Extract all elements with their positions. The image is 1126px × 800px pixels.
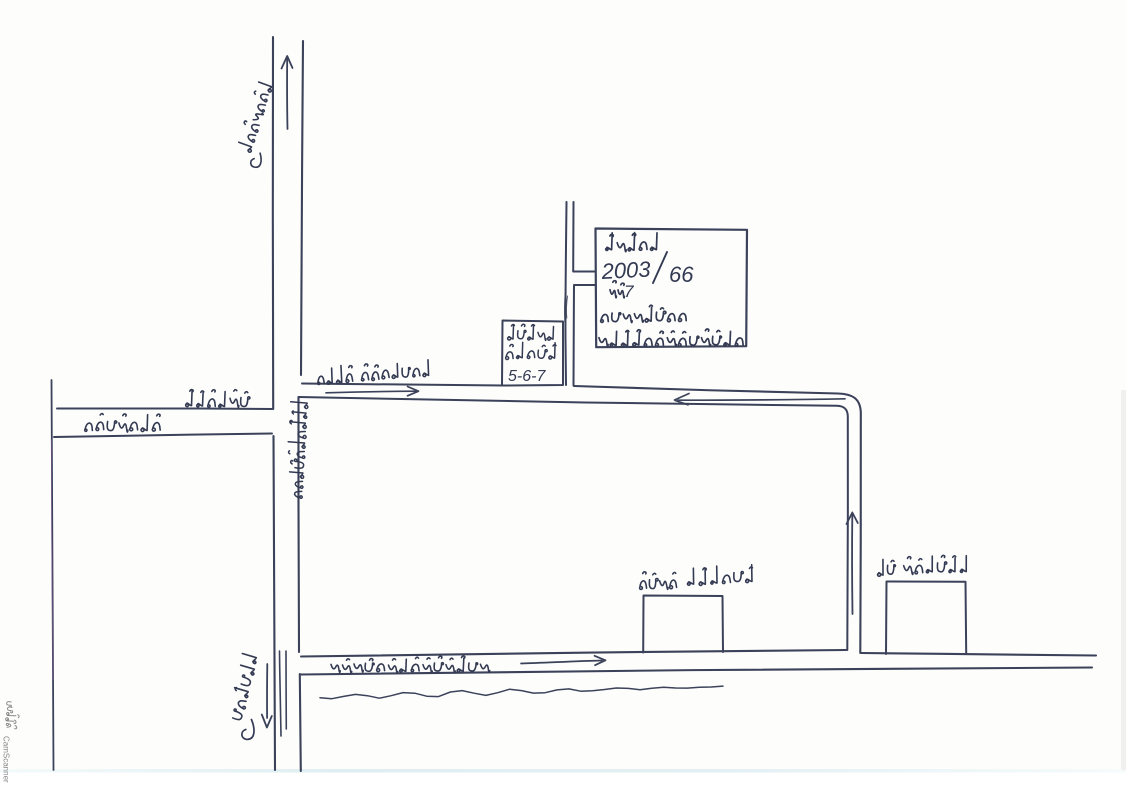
svg-text:7: 7 xyxy=(624,282,634,301)
svg-text:2003: 2003 xyxy=(600,256,652,284)
svg-text:5-6-7: 5-6-7 xyxy=(508,368,546,385)
svg-text:66: 66 xyxy=(669,262,694,287)
svg-text:CamScanner: CamScanner xyxy=(2,736,11,783)
